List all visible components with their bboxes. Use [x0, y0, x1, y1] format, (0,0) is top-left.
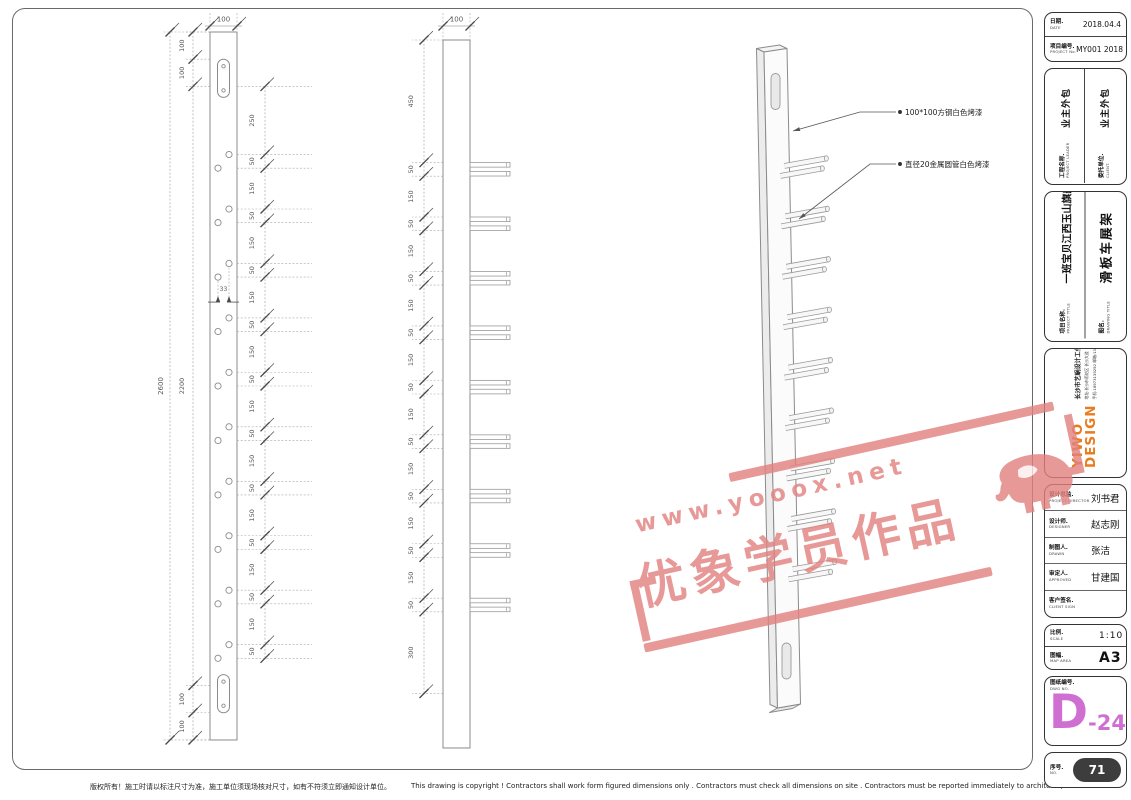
client-value: 业主外包 — [1098, 88, 1111, 128]
svg-text:150: 150 — [248, 237, 256, 249]
project-no-label: 项目编号. PROJECT No. — [1050, 44, 1076, 55]
client-box-rotated: 工程名称. PROJECT LEADER 业主外包 委托单位. CLIENT. … — [1046, 69, 1124, 183]
svg-text:150: 150 — [407, 408, 415, 420]
drawing-title-value: 滑板车展架 — [1096, 211, 1115, 284]
svg-text:100: 100 — [178, 693, 186, 705]
svg-text:250: 250 — [248, 114, 256, 126]
svg-text:直径20金属圆管白色烤漆: 直径20金属圆管白色烤漆 — [905, 159, 990, 169]
copyright-cn: 版权所有！施工时请以标注尺寸为准，施工单位须现场核对尺寸，如有不符须立即通知设计… — [90, 782, 391, 792]
svg-text:150: 150 — [407, 190, 415, 202]
svg-text:150: 150 — [248, 618, 256, 630]
annotation-leaders: 100*100方钢白色烤漆直径20金属圆管白色烤漆 — [793, 107, 990, 219]
svg-text:50: 50 — [407, 220, 415, 228]
scale-row: 比例. SCALE 1:10 — [1045, 625, 1126, 647]
svg-text:150: 150 — [248, 291, 256, 303]
approved-value: 甘建国 — [1091, 570, 1120, 584]
svg-text:50: 50 — [407, 546, 415, 554]
cad-drawing: 1002600100100220010010025050150501505015… — [0, 0, 1040, 790]
svg-text:100: 100 — [178, 67, 186, 79]
svg-text:50: 50 — [407, 383, 415, 391]
drawing-title-row: 图名. DRAWING TITLE 滑板车展架 — [1086, 192, 1125, 339]
iso-view — [757, 45, 837, 713]
designer-value: 赵志刚 — [1091, 517, 1120, 531]
copyright-en: This drawing is copyright ! Contractors … — [411, 782, 1063, 792]
svg-text:100: 100 — [217, 16, 230, 24]
project-leader-value: 业主外包 — [1059, 88, 1072, 128]
director-value: 刘书君 — [1091, 491, 1120, 505]
serial-label: 序号. NO. — [1050, 765, 1063, 776]
studio-name: 长沙市艺蜗设计工作室 — [1073, 348, 1082, 399]
svg-text:50: 50 — [248, 484, 256, 492]
studio-info: 长沙市艺蜗设计工作室 地址:长沙市雨花区 长沙大道 手机:18973139292… — [1073, 348, 1098, 399]
approved-row: 审定人. APPROVED 甘建国 — [1045, 564, 1126, 590]
titleblock-logo-box: YIWO DESIGN 长沙市艺蜗设计工作室 地址:长沙市雨花区 长沙大道 手机… — [1044, 348, 1127, 478]
logo-wordmark: YIWO DESIGN — [1072, 404, 1098, 468]
project-no-row: 项目编号. PROJECT No. MY001 2018 — [1045, 37, 1126, 61]
scale-value: 1:10 — [1099, 631, 1123, 641]
svg-text:450: 450 — [407, 95, 415, 107]
titleblock-scale-box: 比例. SCALE 1:10 图幅. MAP AREA A3 — [1044, 624, 1127, 670]
date-value: 2018.04.4 — [1083, 20, 1121, 29]
copyright-line: 版权所有！施工时请以标注尺寸为准，施工单位须现场核对尺寸，如有不符须立即通知设计… — [90, 782, 1063, 792]
titleblock-date-box: 日期. DATE 2018.04.4 项目编号. PROJECT No. MY0… — [1044, 12, 1127, 62]
svg-text:50: 50 — [407, 274, 415, 282]
svg-text:300: 300 — [407, 646, 415, 658]
svg-text:150: 150 — [248, 346, 256, 358]
svg-text:50: 50 — [407, 329, 415, 337]
svg-text:150: 150 — [407, 517, 415, 529]
serial-badge: 71 — [1073, 758, 1121, 782]
svg-text:150: 150 — [407, 299, 415, 311]
svg-text:50: 50 — [407, 165, 415, 173]
designer-row: 设计师. DESIGNER 赵志刚 — [1045, 511, 1126, 537]
titleblock-signatures-box: 设计总监. PROJECT DIRECTOR 刘书君 设计师. DESIGNER… — [1044, 484, 1127, 618]
project-title-value: 一班宝贝江西玉山旗舰店 — [1058, 191, 1073, 284]
svg-text:150: 150 — [407, 354, 415, 366]
svg-text:150: 150 — [407, 245, 415, 257]
svg-text:50: 50 — [248, 266, 256, 274]
svg-text:100*100方钢白色烤漆: 100*100方钢白色烤漆 — [905, 107, 983, 117]
size-value: A3 — [1099, 650, 1122, 666]
titleblock-serial-box: 序号. NO. 71 — [1044, 752, 1127, 788]
director-row: 设计总监. PROJECT DIRECTOR 刘书君 — [1045, 485, 1126, 511]
studio-contact: 手机:18973139292 邮箱:1300688502@QQ.com — [1092, 348, 1098, 399]
studio-address: 地址:长沙市雨花区 长沙大道 — [1084, 348, 1090, 399]
project-title-row: 项目名称. PROJECT TITLE 一班宝贝江西玉山旗舰店 — [1047, 192, 1086, 339]
svg-text:50: 50 — [248, 321, 256, 329]
svg-text:100: 100 — [178, 39, 186, 51]
titleblock-dwgno-box: 图纸编号. DWG NO. D -24 — [1044, 676, 1127, 746]
svg-text:150: 150 — [407, 572, 415, 584]
dwgno-value: D -24 — [1049, 689, 1126, 736]
svg-text:50: 50 — [248, 157, 256, 165]
svg-text:2600: 2600 — [157, 377, 165, 395]
project-no-value: MY001 2018 — [1076, 45, 1123, 54]
logo-rotated: YIWO DESIGN 长沙市艺蜗设计工作室 地址:长沙市雨花区 长沙大道 手机… — [1046, 349, 1124, 475]
date-label: 日期. DATE — [1050, 19, 1063, 30]
svg-text:150: 150 — [248, 400, 256, 412]
svg-text:50: 50 — [248, 593, 256, 601]
svg-text:50: 50 — [248, 375, 256, 383]
svg-text:50: 50 — [248, 212, 256, 220]
client-sign-row: 客户签名. CLIENT SIGN — [1045, 591, 1126, 617]
side-view: 1004505015050150501505015050150501505015… — [407, 13, 510, 748]
titleblock-client-box: 工程名称. PROJECT LEADER 业主外包 委托单位. CLIENT. … — [1044, 68, 1127, 185]
svg-text:50: 50 — [248, 647, 256, 655]
titleblock-title-box: 项目名称. PROJECT TITLE 一班宝贝江西玉山旗舰店 图名. DRAW… — [1044, 191, 1127, 342]
svg-text:50: 50 — [407, 438, 415, 446]
svg-text:50: 50 — [407, 492, 415, 500]
svg-text:2200: 2200 — [178, 378, 186, 395]
svg-text:150: 150 — [248, 455, 256, 467]
date-row: 日期. DATE 2018.04.4 — [1045, 13, 1126, 37]
svg-text:150: 150 — [248, 182, 256, 194]
title-box-rotated: 项目名称. PROJECT TITLE 一班宝贝江西玉山旗舰店 图名. DRAW… — [1047, 192, 1125, 339]
client-row: 委托单位. CLIENT. 业主外包 — [1085, 69, 1124, 183]
svg-text:150: 150 — [248, 509, 256, 521]
svg-text:100: 100 — [178, 720, 186, 732]
size-row: 图幅. MAP AREA A3 — [1045, 647, 1126, 669]
project-leader-row: 工程名称. PROJECT LEADER 业主外包 — [1046, 69, 1085, 183]
drawn-value: 张洁 — [1091, 543, 1110, 557]
svg-text:50: 50 — [407, 601, 415, 609]
svg-text:50: 50 — [248, 430, 256, 438]
drawn-row: 制图人. DRAWN 张洁 — [1045, 538, 1126, 564]
svg-text:33: 33 — [220, 286, 228, 293]
date-label-en: DATE — [1050, 26, 1063, 30]
svg-text:50: 50 — [248, 538, 256, 546]
svg-text:100: 100 — [450, 16, 463, 24]
svg-text:150: 150 — [248, 564, 256, 576]
front-view: 1002600100100220010010025050150501505015… — [157, 13, 312, 744]
svg-text:150: 150 — [407, 463, 415, 475]
